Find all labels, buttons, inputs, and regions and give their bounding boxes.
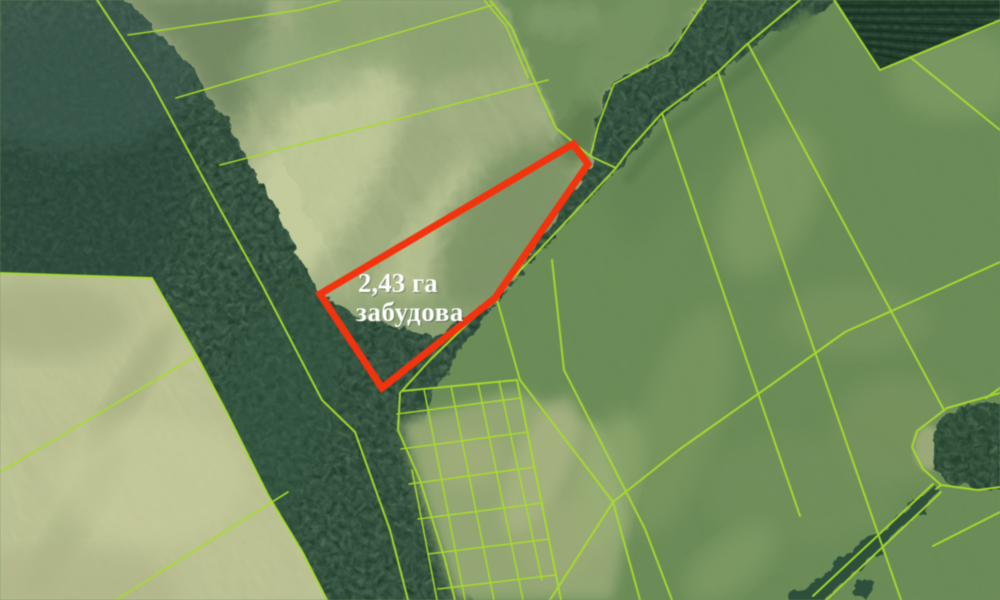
svg-text:2,43 га: 2,43 га: [358, 268, 438, 298]
svg-text:забудова: забудова: [356, 297, 464, 327]
